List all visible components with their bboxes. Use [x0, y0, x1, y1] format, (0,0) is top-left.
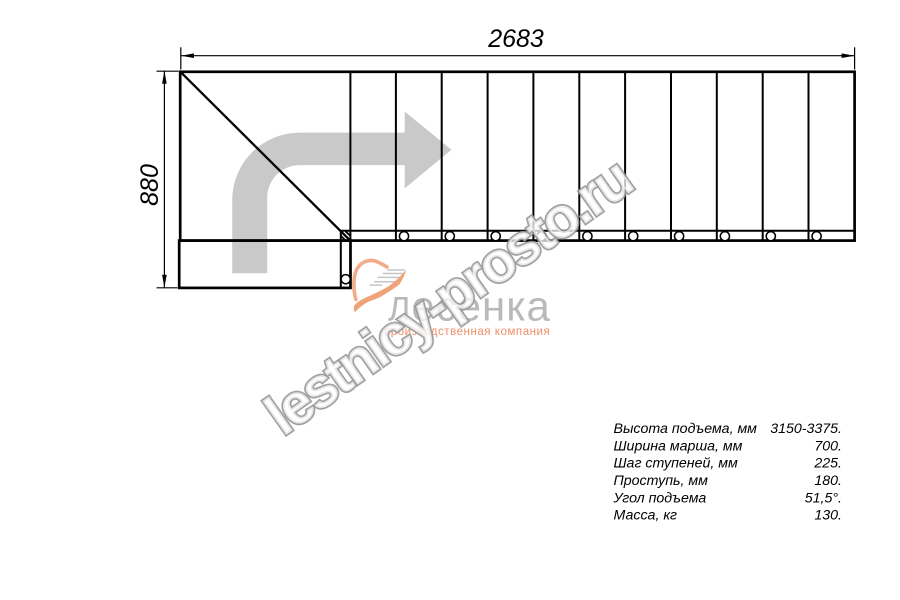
svg-text:Проступь, мм: Проступь, мм	[614, 473, 709, 489]
svg-text:51,5°.: 51,5°.	[805, 490, 842, 506]
svg-text:880: 880	[136, 164, 164, 206]
svg-text:Ширина марша, мм: Ширина марша, мм	[614, 438, 743, 454]
svg-text:700.: 700.	[814, 438, 842, 454]
svg-text:Масса, кг: Масса, кг	[614, 508, 678, 524]
svg-text:3150-3375.: 3150-3375.	[770, 421, 842, 437]
svg-text:Высота подъема, мм: Высота подъема, мм	[614, 421, 758, 437]
svg-text:130.: 130.	[814, 508, 842, 524]
svg-text:Угол подъема: Угол подъема	[613, 490, 707, 506]
svg-text:2683: 2683	[487, 25, 544, 53]
svg-text:225.: 225.	[813, 456, 842, 472]
svg-text:180.: 180.	[814, 473, 842, 489]
svg-text:Шаг ступеней, мм: Шаг ступеней, мм	[614, 456, 738, 472]
